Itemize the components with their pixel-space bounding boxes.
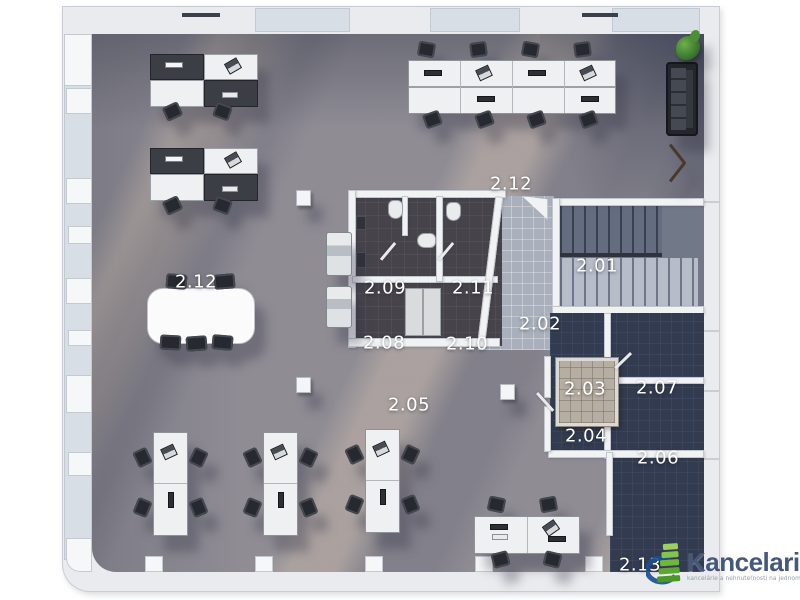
room-label: 2.10 [446, 334, 488, 355]
wall [544, 406, 551, 452]
room-label: 2.12 [175, 272, 217, 293]
wall-pillar [64, 34, 92, 86]
wall [402, 196, 408, 236]
wall-pillar [145, 556, 163, 572]
wall-recess [582, 13, 618, 17]
toilet [446, 202, 461, 221]
wall [606, 452, 613, 536]
wall-pillar [255, 556, 273, 572]
wall-pillar [585, 556, 603, 572]
wall-joint [704, 330, 720, 332]
wall [548, 450, 704, 458]
cabinet [423, 288, 441, 336]
building-bars-icon [646, 540, 684, 592]
wall-pillar [365, 556, 383, 572]
cabinet [405, 288, 423, 336]
room-label: 2.02 [519, 314, 561, 335]
wall-pillar [66, 88, 92, 114]
window-top [430, 8, 520, 32]
wall [552, 198, 560, 312]
room-label: 2.01 [576, 256, 618, 277]
floor-shadow [540, 34, 704, 224]
wall [348, 190, 356, 348]
watermark-logo: Kancelarie .sk kancelárie a nehnuteľnost… [646, 540, 800, 592]
room-label: 2.06 [637, 448, 679, 469]
wall-pillar [66, 178, 92, 204]
stairs-upper-flight [560, 206, 662, 254]
wall-joint [704, 458, 720, 460]
floor-plan: 2.12 2.01 2.09 2.11 2.02 2.08 2.10 2.12 … [0, 0, 800, 600]
wall-recess [182, 13, 220, 17]
room-label: 2.05 [388, 395, 430, 416]
room-label: 2.09 [364, 278, 406, 299]
wall-pillar [68, 330, 92, 346]
wall-joint [704, 390, 720, 392]
toilet [388, 200, 403, 219]
room-label: 2.11 [452, 278, 494, 299]
brand-tagline: kancelárie a nehnuteľnosti na jednom mie… [687, 576, 800, 582]
window-top [612, 8, 700, 32]
room-label: 2.04 [565, 426, 607, 447]
toilet [417, 233, 436, 248]
brand-name: Kancelarie [687, 549, 800, 575]
wall [552, 198, 704, 206]
wall-pillar [68, 226, 92, 244]
wall-pillar [66, 278, 92, 304]
wall-pillar [68, 452, 92, 476]
wall [544, 356, 551, 398]
sink [356, 252, 366, 268]
wall-pillar [475, 556, 493, 572]
wall [348, 190, 506, 198]
wall-pillar [66, 375, 92, 413]
room-label: 2.03 [564, 379, 606, 400]
sink [356, 216, 366, 230]
room-label: 2.07 [636, 378, 678, 399]
room-label: 2.12 [490, 174, 532, 195]
wall-pillar [66, 538, 92, 572]
wall [436, 196, 443, 282]
window-top [255, 8, 350, 32]
room-label: 2.08 [363, 333, 405, 354]
wall-joint [704, 201, 720, 203]
